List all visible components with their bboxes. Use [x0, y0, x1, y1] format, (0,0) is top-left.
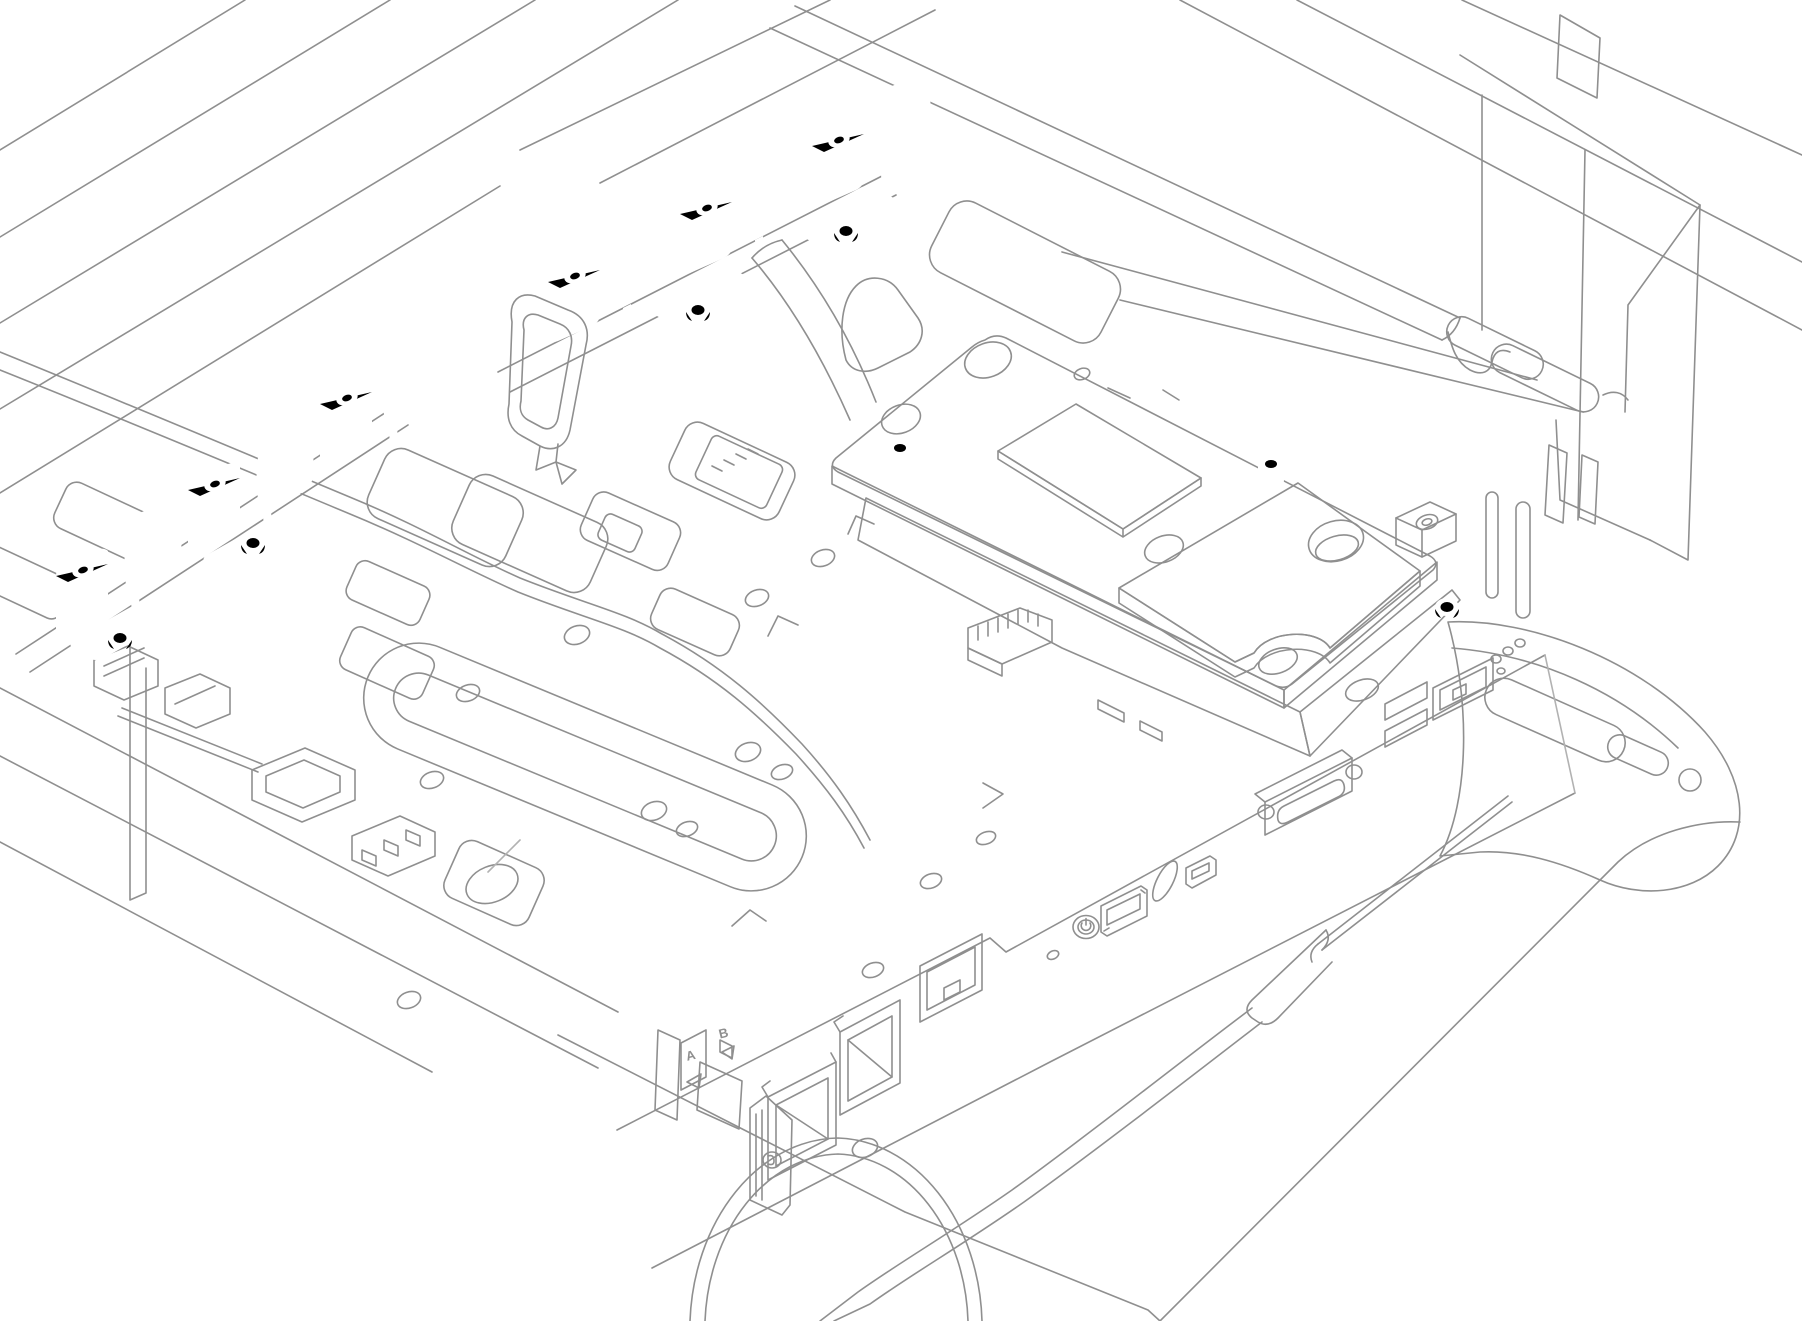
background — [0, 0, 1802, 1321]
isometric-diagram: A B — [0, 0, 1802, 1321]
hardware-illustration: A B — [0, 0, 1802, 1321]
